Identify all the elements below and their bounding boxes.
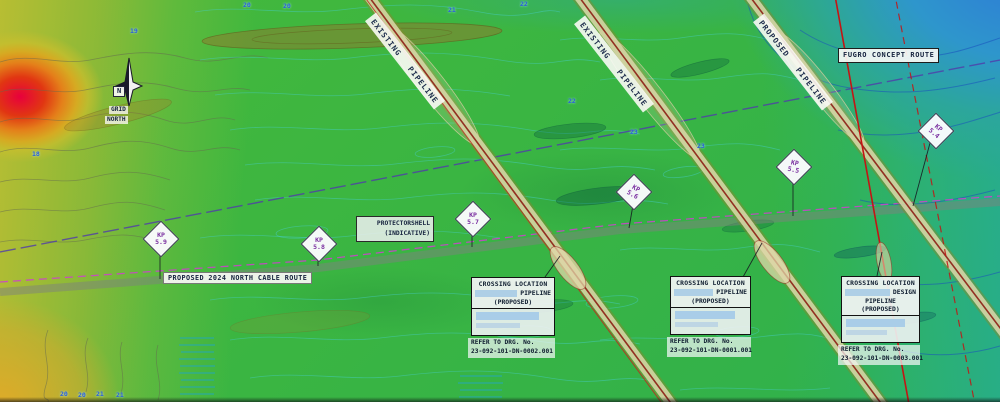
protectorshell-label: PROTECTORSHELL (INDICATIVE): [356, 216, 434, 242]
crossing-callout-3: CROSSING LOCATION DESIGN PIPELINE (PROPO…: [841, 276, 920, 365]
redacted-text: [675, 311, 735, 319]
grid-north-label-north: NORTH: [105, 116, 128, 124]
sand-ripples: [179, 338, 503, 397]
depth-contour-label: 22: [568, 97, 576, 105]
redacted-text: [674, 289, 713, 296]
grid-north-label-grid: GRID: [109, 106, 128, 114]
crossing-3-line3: PIPELINE (PROPOSED): [845, 297, 916, 313]
kp-value: 5.5: [787, 166, 800, 176]
kp-value: 5.9: [155, 239, 167, 246]
crossing-1-line3: (PROPOSED): [475, 298, 551, 306]
fugro-concept-route-label: FUGRO CONCEPT ROUTE: [838, 48, 939, 63]
crossing-2-reference: REFER TO DRG. No. 23-092-101-DN-0001.001: [667, 337, 751, 357]
crossing-3-line2: DESIGN: [893, 288, 916, 296]
drawing-number: 23-092-101-DN-0001.001: [670, 347, 748, 356]
depth-contour-label: 19: [130, 27, 138, 35]
north-arrow-icon: [102, 54, 156, 114]
crossing-2-title: CROSSING LOCATION: [674, 279, 747, 287]
redacted-text: [846, 319, 905, 327]
depth-contour-label: 18: [32, 150, 40, 158]
crossing-2-line3: (PROPOSED): [674, 297, 747, 305]
depth-contour-label: 21: [448, 6, 456, 14]
kp-value: 5.7: [467, 219, 479, 226]
depth-contour-label: 20: [283, 2, 291, 10]
depth-contour-label: 23: [630, 128, 638, 136]
leader-lines: [160, 143, 930, 279]
crossing-3-reference: REFER TO DRG. No. 23-092-101-DN-0003.001: [838, 345, 920, 365]
crossing-1-reference: REFER TO DRG. No. 23-092-101-DN-0002.001: [468, 338, 555, 358]
protectorshell-line2: (INDICATIVE): [360, 229, 430, 239]
protectorshell-line1: PROTECTORSHELL: [360, 219, 430, 229]
depth-contour-label: 21: [96, 390, 104, 398]
crossing-2-line2: PIPELINE: [716, 288, 747, 296]
drawing-number: 23-092-101-DN-0002.001: [471, 348, 552, 357]
depth-contour-label: 23: [697, 142, 705, 150]
redacted-text: [476, 312, 539, 320]
refer-text: REFER TO DRG. No.: [841, 346, 917, 355]
redacted-text: [475, 290, 517, 297]
cable-route-label: PROPOSED 2024 NORTH CABLE ROUTE: [163, 272, 312, 284]
redacted-panel: [471, 309, 555, 336]
depth-contour-label: 20: [78, 391, 86, 399]
drawing-number: 23-092-101-DN-0003.001: [841, 355, 917, 364]
redacted-panel: [670, 308, 751, 335]
depth-contour-label: 22: [520, 0, 528, 8]
redacted-text: [845, 289, 890, 296]
redacted-text: [675, 322, 718, 327]
crossing-callout-2: CROSSING LOCATION PIPELINE (PROPOSED) RE…: [670, 276, 751, 357]
redacted-text: [846, 330, 887, 335]
north-arrow-n-label: N: [113, 86, 125, 97]
depth-contour-label: 20: [243, 1, 251, 9]
kp-value: 5.8: [313, 244, 325, 251]
crossing-1-title: CROSSING LOCATION: [475, 280, 551, 288]
depth-contour-label: 20: [60, 390, 68, 398]
refer-text: REFER TO DRG. No.: [471, 339, 552, 348]
crossing-3-title: CROSSING LOCATION: [845, 279, 916, 287]
redacted-panel: [841, 316, 920, 343]
crossing-1-line2: PIPELINE: [520, 289, 551, 297]
bathymetry-map: N GRID NORTH EXISTING PIPELINE EXISTING …: [0, 0, 1000, 402]
crossing-3-header: CROSSING LOCATION DESIGN PIPELINE (PROPO…: [841, 276, 920, 316]
refer-text: REFER TO DRG. No.: [670, 338, 748, 347]
depth-contour-label: 21: [116, 391, 124, 399]
crossing-1-header: CROSSING LOCATION PIPELINE (PROPOSED): [471, 277, 555, 309]
redacted-text: [476, 323, 520, 328]
crossing-2-header: CROSSING LOCATION PIPELINE (PROPOSED): [670, 276, 751, 308]
crossing-callout-1: CROSSING LOCATION PIPELINE (PROPOSED) RE…: [471, 277, 555, 358]
